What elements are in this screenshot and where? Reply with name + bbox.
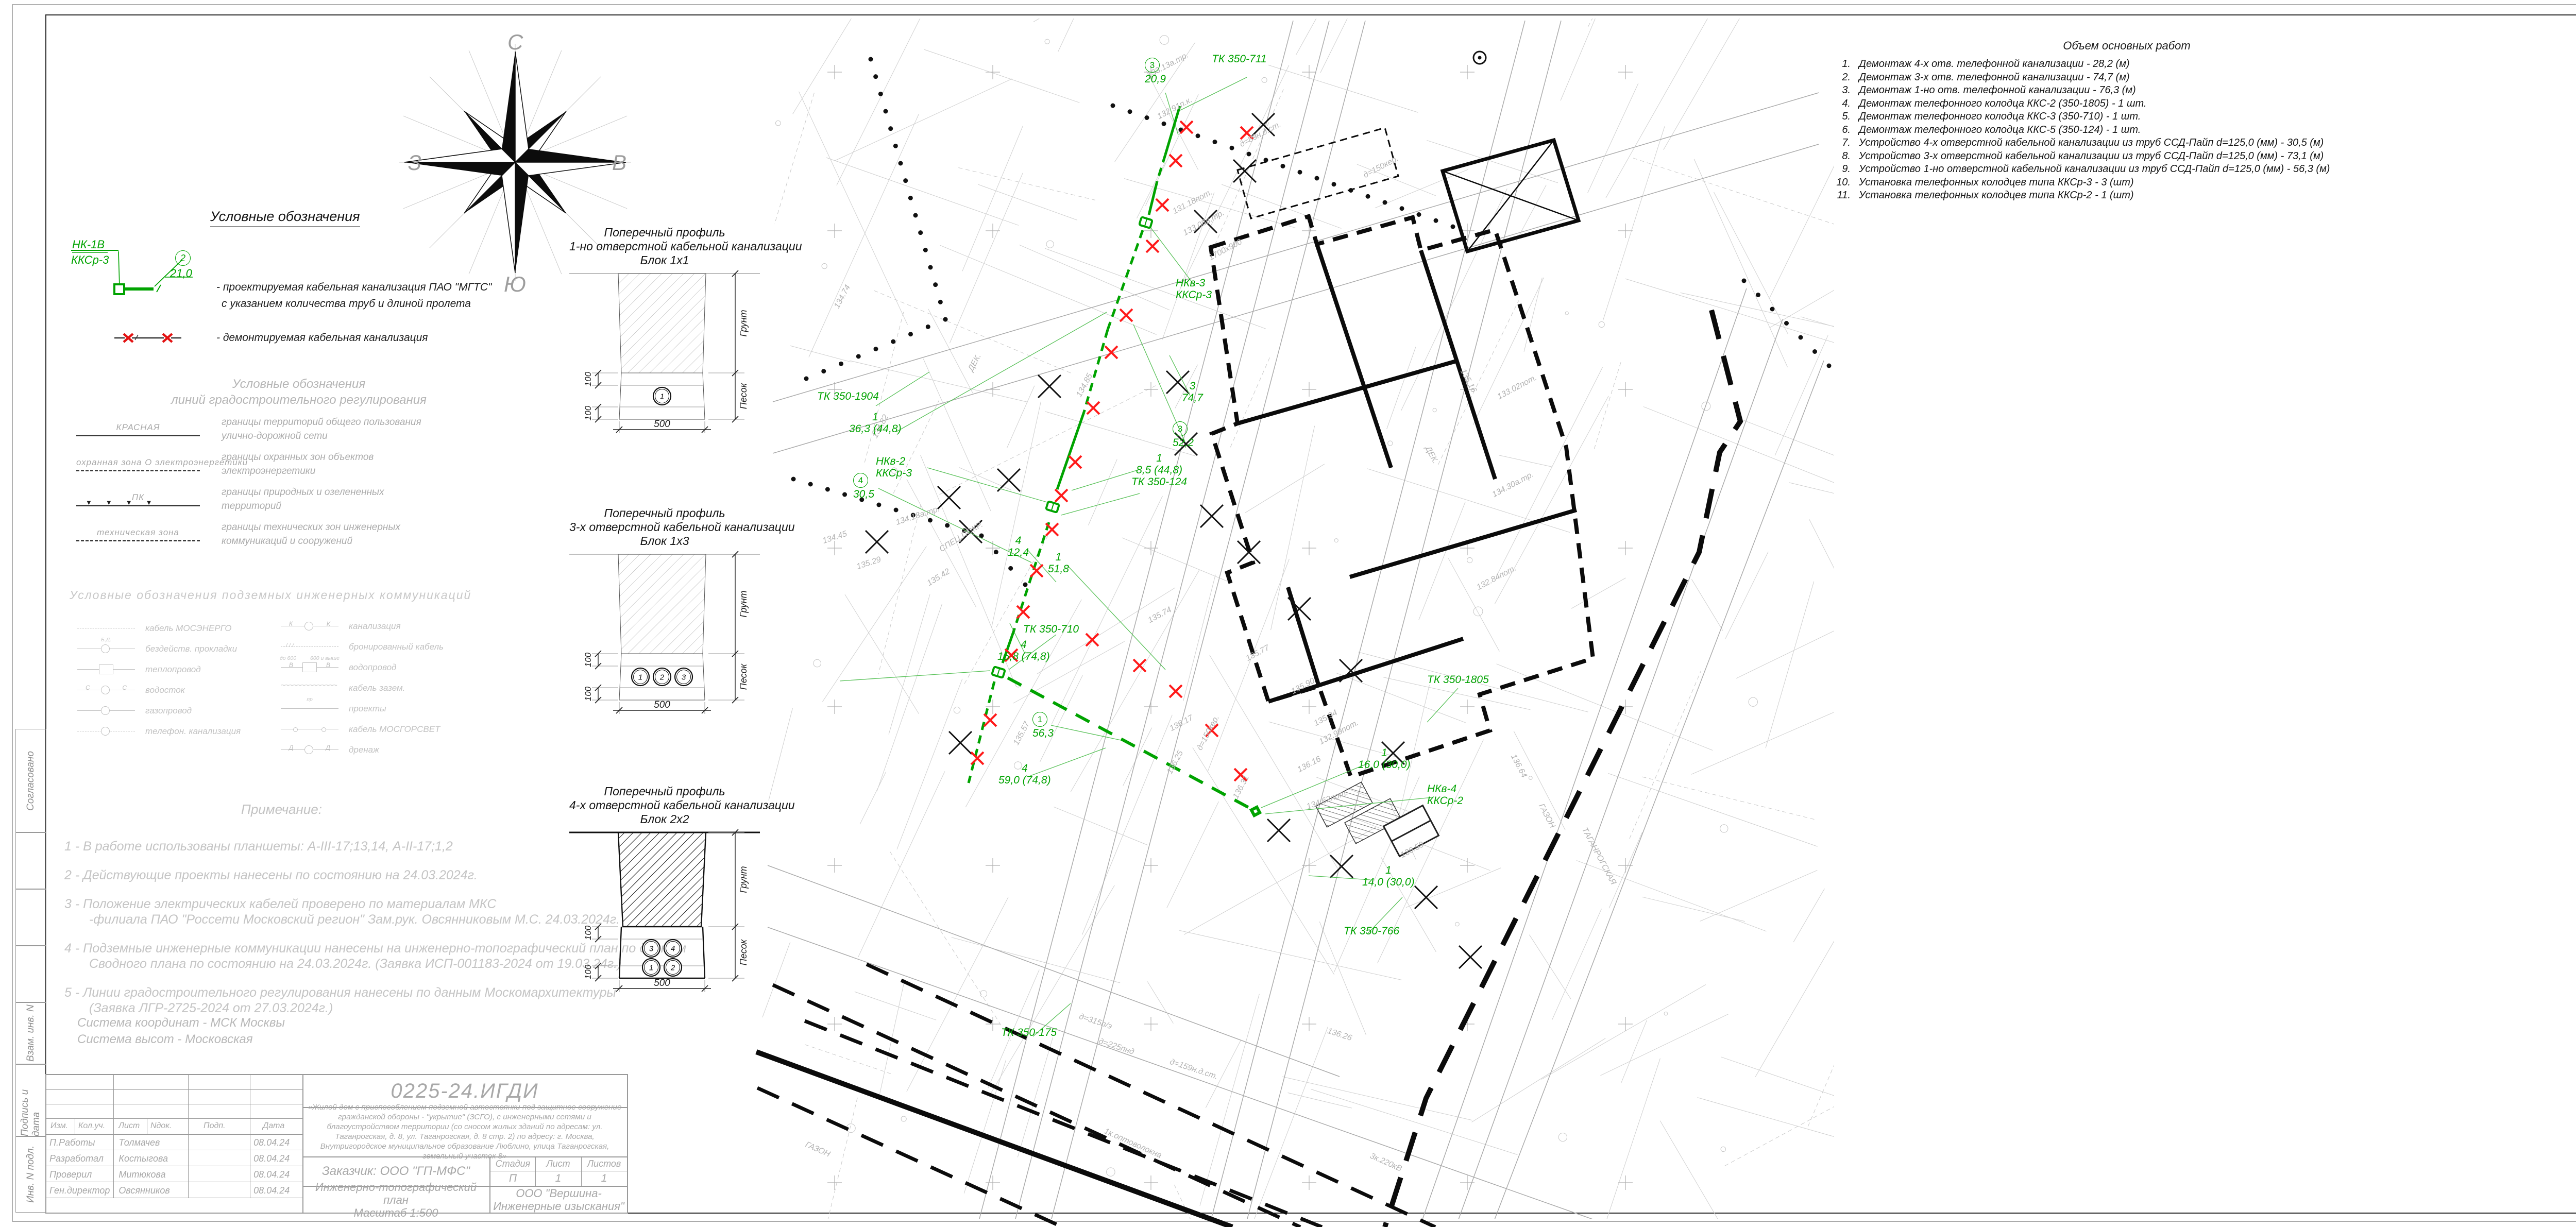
boundary-lines xyxy=(756,52,1740,1227)
cross-section-profile: Поперечный профиль4-х отверстной кабельн… xyxy=(569,785,760,1007)
survey-point-icon xyxy=(1473,52,1486,64)
profile-title: 3-х отверстной кабельной канализации xyxy=(569,520,760,534)
road-edge-lines xyxy=(768,21,1824,1221)
profile-drawing: 1ГрунтПесок100100500 xyxy=(569,267,760,445)
profile-title: Поперечный профиль xyxy=(569,226,760,240)
svg-text:Песок: Песок xyxy=(738,939,749,965)
svg-text:3: 3 xyxy=(649,945,654,953)
building-inner-walls xyxy=(1238,244,1577,702)
building-outline xyxy=(1211,216,1593,777)
proposed-cable-route xyxy=(840,77,1458,1036)
profile-title: Блок 2х2 xyxy=(569,812,760,826)
svg-text:1: 1 xyxy=(660,393,664,401)
svg-text:Грунт: Грунт xyxy=(738,590,749,617)
svg-text:100: 100 xyxy=(583,686,593,701)
proposed-manhole-icon xyxy=(992,667,1005,678)
profile-title: Поперечный профиль xyxy=(569,506,760,520)
svg-text:2: 2 xyxy=(659,673,665,682)
route-end-box-icon xyxy=(1249,805,1262,817)
profile-drawing: 3412ГрунтПесок100100500 xyxy=(569,826,760,1004)
svg-text:500: 500 xyxy=(654,700,670,710)
red-line-boundary xyxy=(756,1052,1232,1227)
fence-dot-lines xyxy=(791,57,1832,587)
proposed-manhole-icon xyxy=(1046,501,1059,513)
cross-section-profile: Поперечный профиль3-х отверстной кабельн… xyxy=(569,506,760,728)
profile-title: 4-х отверстной кабельной канализации xyxy=(569,798,760,812)
drawing-sheet: { "sheet": { "coord_system": "Система ко… xyxy=(0,0,2576,1227)
profile-title: 1-но отверстной кабельной канализации xyxy=(569,240,760,253)
svg-text:100: 100 xyxy=(583,371,593,386)
zone-dash-a xyxy=(773,985,1300,1227)
green-route-segments xyxy=(969,106,1251,809)
svg-text:Грунт: Грунт xyxy=(738,866,749,893)
topo-background-lines xyxy=(742,0,1992,1227)
svg-text:3: 3 xyxy=(682,673,686,682)
svg-text:500: 500 xyxy=(654,978,670,989)
svg-text:100: 100 xyxy=(583,652,593,667)
svg-text:Грунт: Грунт xyxy=(738,310,749,336)
svg-text:2: 2 xyxy=(670,964,675,973)
svg-text:1: 1 xyxy=(649,964,653,973)
profile-title: Поперечный профиль xyxy=(569,785,760,798)
tech-zone-line xyxy=(1385,310,1740,1227)
svg-text:100: 100 xyxy=(583,964,593,979)
svg-text:Песок: Песок xyxy=(738,663,749,690)
site-plan-canvas xyxy=(0,0,2576,1227)
svg-text:Песок: Песок xyxy=(738,382,749,409)
profile-title: Блок 1х1 xyxy=(569,253,760,267)
removal-x-marks xyxy=(866,113,1482,968)
svg-text:1: 1 xyxy=(638,673,642,682)
svg-text:500: 500 xyxy=(654,419,670,430)
zone-dash-b xyxy=(805,1021,1322,1227)
cross-section-profile: Поперечный профиль1-но отверстной кабель… xyxy=(569,226,760,448)
svg-text:4: 4 xyxy=(671,945,675,953)
svg-text:100: 100 xyxy=(583,405,593,420)
proposed-manhole-icon xyxy=(1139,217,1153,228)
coordinate-grid-crosses xyxy=(827,65,1633,1190)
svg-text:100: 100 xyxy=(583,925,593,940)
profile-drawing: 123ГрунтПесок100100500 xyxy=(569,548,760,726)
profile-title: Блок 1х3 xyxy=(569,534,760,548)
